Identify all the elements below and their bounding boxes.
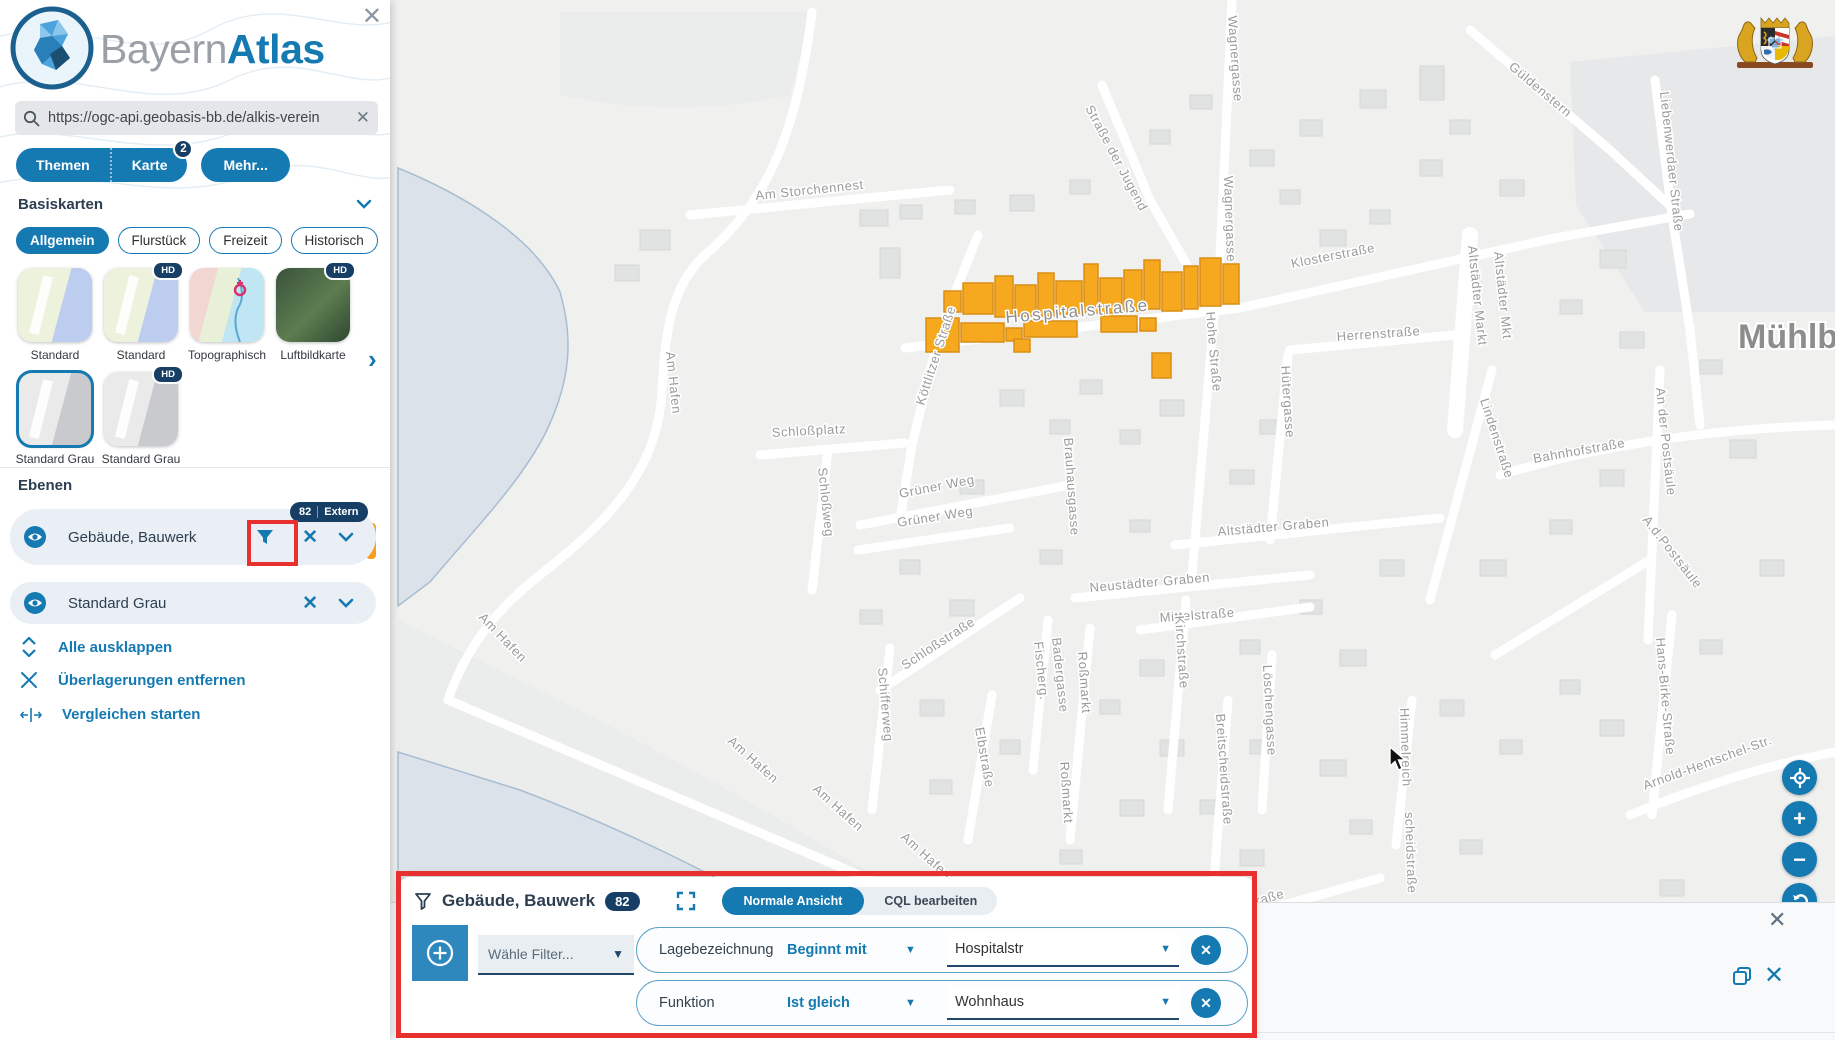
map-land-patch xyxy=(560,12,812,108)
filter-panel-title: Gebäude, Bauwerk xyxy=(442,891,595,911)
thumb-label: Standard Grau xyxy=(12,452,98,466)
zoom-in-button[interactable]: + xyxy=(1782,801,1817,836)
svg-text:scheidstraße: scheidstraße xyxy=(1402,812,1420,894)
layer-expand-chevron-icon[interactable] xyxy=(338,598,354,609)
filter-row-lagebezeichnung: Lagebezeichnung Beginnt mit ▼ Hospitalst… xyxy=(636,927,1248,973)
plus-circle-icon xyxy=(425,938,455,968)
extern-count-badge: 82 Extern xyxy=(290,502,368,522)
add-filter-button[interactable] xyxy=(412,925,468,981)
brand-light: Bayern xyxy=(100,26,227,72)
layer-visibility-toggle[interactable] xyxy=(24,526,46,548)
remove-filter-button[interactable]: ✕ xyxy=(1191,935,1221,965)
view-mode-toggle[interactable]: Normale Ansicht CQL bearbeiten xyxy=(722,887,998,915)
hd-badge: HD xyxy=(152,365,184,384)
layer-label: Gebäude, Bauwerk xyxy=(68,529,246,546)
filter-panel: Gebäude, Bauwerk 82 Normale Ansicht CQL … xyxy=(398,877,1255,1040)
thumb-label: Standard Grau xyxy=(98,452,184,466)
restore-window-icon[interactable] xyxy=(1732,966,1752,986)
filter-funnel-icon xyxy=(256,528,274,546)
svg-text:Wagnergasse: Wagnergasse xyxy=(1221,176,1239,263)
city-label: Mühlberg xyxy=(1738,318,1835,356)
choose-filter-dropdown[interactable]: Wähle Filter... ▼ xyxy=(478,935,634,975)
search-clear-icon[interactable]: ✕ xyxy=(356,108,370,128)
filter-value-dropdown[interactable]: Hospitalstr ▼ xyxy=(947,933,1179,967)
chip-allgemein[interactable]: Allgemein xyxy=(16,227,109,254)
layer-label: Standard Grau xyxy=(68,595,292,612)
tab-mehr[interactable]: Mehr... xyxy=(201,148,289,182)
geolocate-icon xyxy=(1790,768,1810,788)
filter-value-text: Hospitalstr xyxy=(955,941,1160,957)
thumb-label: Luftbildkarte xyxy=(270,348,356,362)
fullscreen-icon[interactable] xyxy=(676,891,696,911)
zoom-out-button[interactable]: − xyxy=(1782,842,1817,877)
tab-karte[interactable]: Karte 2 xyxy=(110,148,188,182)
layer-filter-button[interactable] xyxy=(256,528,274,546)
remove-filter-button[interactable]: ✕ xyxy=(1191,988,1221,1018)
chip-flurstueck[interactable]: Flurstück xyxy=(118,227,201,254)
thumb-label: Standard xyxy=(98,348,184,362)
choose-filter-placeholder: Wähle Filter... xyxy=(488,946,612,962)
layer-remove-icon[interactable]: ✕ xyxy=(302,592,318,615)
start-compare-link[interactable]: Vergleichen starten xyxy=(20,706,200,723)
compare-arrows-icon xyxy=(20,708,42,722)
filter-value-text: Wohnhaus xyxy=(955,994,1160,1010)
filter-field-label: Lagebezeichnung xyxy=(659,942,787,958)
ebenen-heading: Ebenen xyxy=(18,477,72,494)
filter-operator-dropdown[interactable]: Beginnt mit xyxy=(787,942,905,958)
close-icon xyxy=(20,671,38,689)
thumb-label: Topographisch xyxy=(184,348,270,362)
hd-badge: HD xyxy=(324,261,356,280)
basemap-category-chips: Allgemein Flurstück Freizeit Historisch xyxy=(16,227,378,254)
filter-row-funktion: Funktion Ist gleich ▼ Wohnhaus ▼ ✕ xyxy=(636,980,1248,1026)
layer-count: 82 xyxy=(290,506,318,518)
basiskarten-heading: Basiskarten xyxy=(18,196,103,213)
svg-text:Himmelreich: Himmelreich xyxy=(1397,708,1415,787)
expand-all-link[interactable]: Alle ausklappen xyxy=(20,636,172,658)
panel-close-icon[interactable]: ✕ xyxy=(1764,961,1784,990)
bavaria-coat-of-arms xyxy=(1731,14,1819,72)
chip-freizeit[interactable]: Freizeit xyxy=(209,227,281,254)
geolocate-button[interactable] xyxy=(1782,760,1817,795)
sidebar-divider xyxy=(0,467,390,468)
search-bar[interactable]: ✕ xyxy=(15,101,378,135)
result-count-badge: 82 xyxy=(605,892,639,911)
brand-wordmark: BayernAtlas xyxy=(100,26,325,73)
filter-operator-dropdown[interactable]: Ist gleich xyxy=(787,995,905,1011)
basemap-thumb-topographisch[interactable] xyxy=(190,268,264,342)
thumb-label: Standard xyxy=(12,348,98,362)
search-icon xyxy=(23,110,40,127)
chevron-down-icon[interactable]: ▼ xyxy=(905,944,947,956)
bayernatlas-logo xyxy=(10,6,94,90)
sidebar-close-icon[interactable]: ✕ xyxy=(362,2,382,31)
filter-funnel-outline-icon xyxy=(414,892,432,910)
layer-visibility-toggle[interactable] xyxy=(24,592,46,614)
normal-view-tab[interactable]: Normale Ansicht xyxy=(722,887,865,915)
basemap-thumb-standard-hd[interactable]: HD xyxy=(104,268,178,342)
brand-bold: Atlas xyxy=(227,26,325,72)
basemap-thumb-luftbildkarte[interactable]: HD xyxy=(276,268,350,342)
minus-icon: − xyxy=(1793,847,1806,873)
layer-row-standard-grau: Standard Grau ✕ xyxy=(10,582,376,624)
expand-collapse-icon xyxy=(20,636,38,658)
bottom-sheet-close-icon[interactable]: ✕ xyxy=(1768,907,1786,933)
chevron-down-icon: ▼ xyxy=(1160,996,1171,1008)
sidebar: ✕ BayernAtlas ✕ Themen Karte 2 Mehr... B… xyxy=(0,0,390,1040)
hd-badge: HD xyxy=(152,261,184,280)
karte-count-badge: 2 xyxy=(173,139,193,159)
extern-label: Extern xyxy=(318,506,367,518)
layer-remove-icon[interactable]: ✕ xyxy=(302,526,318,549)
thumb-road-decoration xyxy=(27,268,55,342)
eye-icon xyxy=(24,526,46,548)
plus-icon: + xyxy=(1793,806,1806,832)
section-collapse-chevron-icon[interactable] xyxy=(356,198,372,210)
bottom-sheet-divider xyxy=(1255,1032,1835,1033)
cql-edit-tab[interactable]: CQL bearbeiten xyxy=(864,887,997,915)
chevron-down-icon: ▼ xyxy=(1160,943,1171,955)
filter-value-dropdown[interactable]: Wohnhaus ▼ xyxy=(947,986,1179,1020)
filter-field-label: Funktion xyxy=(659,995,787,1011)
layer-expand-chevron-icon[interactable] xyxy=(338,532,354,543)
thumb-carousel-next-icon[interactable]: › xyxy=(368,344,377,375)
basemap-thumb-standard-grau-hd[interactable]: HD xyxy=(104,372,178,446)
basemap-thumb-standard[interactable] xyxy=(18,268,92,342)
eye-icon xyxy=(24,592,46,614)
basemap-thumb-standard-grau[interactable] xyxy=(18,372,92,446)
topo-thumb-art xyxy=(190,268,264,342)
remove-overlays-link[interactable]: Überlagerungen entfernen xyxy=(20,671,246,689)
tab-themen[interactable]: Themen xyxy=(16,148,110,182)
search-input[interactable] xyxy=(48,110,352,126)
chevron-down-icon: ▼ xyxy=(612,947,624,961)
chip-historisch[interactable]: Historisch xyxy=(291,227,378,254)
chevron-down-icon[interactable]: ▼ xyxy=(905,997,947,1009)
